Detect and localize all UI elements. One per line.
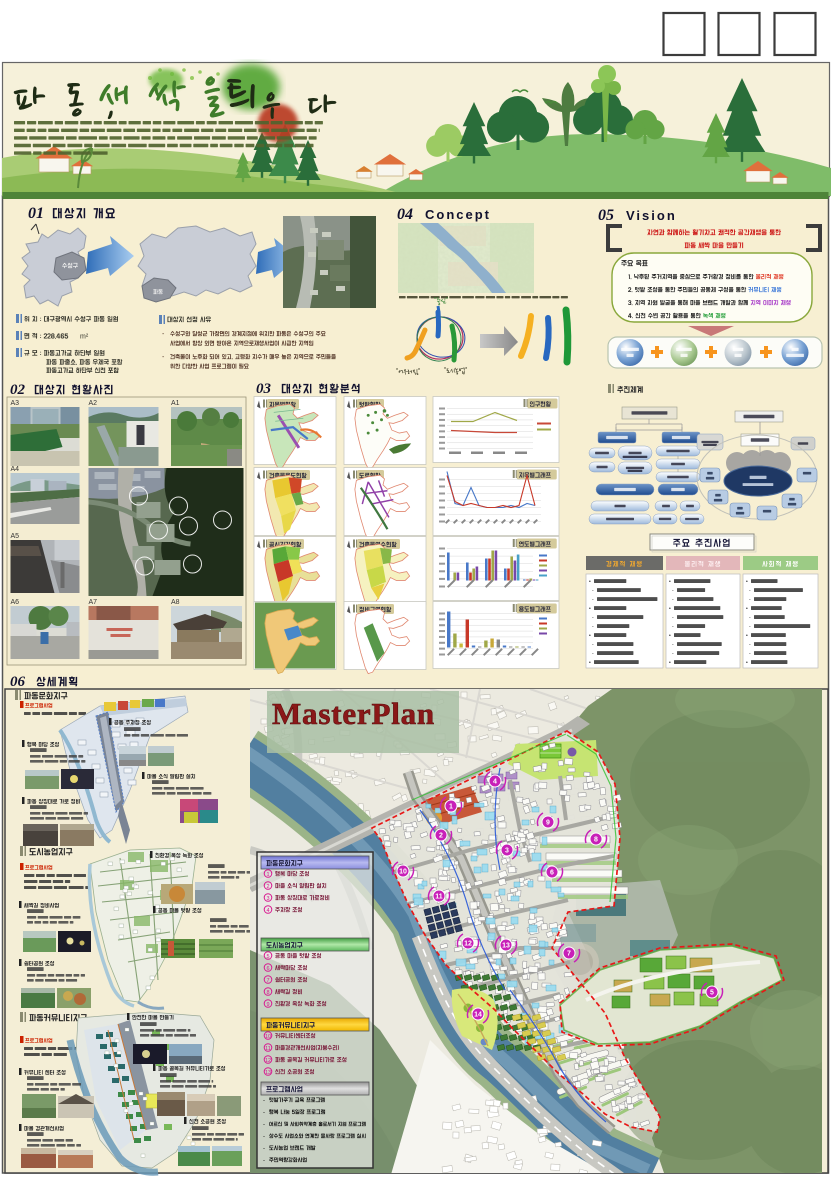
svg-text:4: 4 — [266, 908, 269, 914]
svg-text:13: 13 — [265, 1070, 271, 1076]
svg-text:5: 5 — [710, 989, 714, 996]
svg-text:•: • — [589, 579, 591, 585]
svg-text:A8: A8 — [171, 599, 180, 606]
svg-text:9: 9 — [546, 819, 550, 826]
svg-text:A2: A2 — [89, 400, 98, 407]
svg-text:•: • — [589, 633, 591, 639]
svg-text:•: • — [589, 660, 591, 666]
svg-text:3: 3 — [266, 896, 269, 902]
svg-text:A4: A4 — [11, 466, 20, 473]
svg-text:11: 11 — [435, 893, 443, 900]
svg-text:-: - — [263, 1146, 265, 1152]
svg-text:4: 4 — [493, 778, 497, 785]
svg-text:•: • — [746, 579, 748, 585]
svg-text:8: 8 — [266, 990, 269, 996]
svg-text:•: • — [746, 660, 748, 666]
svg-text:3: 3 — [505, 847, 509, 854]
svg-text:-: - — [263, 1098, 265, 1104]
svg-text:13: 13 — [502, 942, 510, 949]
svg-text:Vision: Vision — [626, 208, 677, 223]
svg-text:A3: A3 — [11, 400, 20, 407]
svg-text:A5: A5 — [11, 533, 20, 540]
svg-text:•: • — [589, 606, 591, 612]
svg-text:6: 6 — [550, 869, 554, 876]
svg-text:11: 11 — [265, 1046, 271, 1052]
svg-text:8: 8 — [594, 836, 598, 843]
svg-text:04: 04 — [397, 206, 413, 223]
svg-text:2: 2 — [439, 832, 443, 839]
svg-text:5: 5 — [266, 954, 269, 960]
svg-text:7: 7 — [266, 978, 269, 984]
svg-text:-: - — [263, 1110, 265, 1116]
svg-text:MasterPlan: MasterPlan — [272, 696, 435, 731]
svg-text:m²: m² — [80, 334, 89, 341]
svg-text:05: 05 — [598, 207, 614, 224]
svg-text:A6: A6 — [11, 599, 20, 606]
svg-text:-: - — [263, 1122, 265, 1128]
svg-text:12: 12 — [265, 1058, 271, 1064]
svg-text:2: 2 — [266, 884, 269, 890]
svg-text:1: 1 — [266, 872, 269, 878]
svg-text:1: 1 — [449, 803, 453, 810]
svg-text:12: 12 — [464, 940, 472, 947]
svg-text:Concept: Concept — [425, 207, 491, 222]
svg-text:•: • — [669, 579, 671, 585]
svg-text:•: • — [669, 606, 671, 612]
svg-text:A1: A1 — [171, 400, 180, 407]
svg-text:•: • — [669, 660, 671, 666]
svg-text:9: 9 — [266, 1002, 269, 1008]
svg-text:10: 10 — [399, 868, 407, 875]
svg-text:14: 14 — [474, 1011, 482, 1018]
svg-text:10: 10 — [265, 1034, 271, 1040]
svg-text:•: • — [746, 633, 748, 639]
svg-text:•: • — [746, 606, 748, 612]
svg-text:A7: A7 — [89, 599, 98, 606]
svg-text:03: 03 — [256, 381, 272, 397]
svg-text:-: - — [263, 1134, 265, 1140]
svg-text:6: 6 — [266, 966, 269, 972]
svg-text:7: 7 — [567, 950, 571, 957]
svg-text:02: 02 — [10, 382, 26, 398]
svg-text:-: - — [263, 1158, 265, 1164]
svg-text:01: 01 — [28, 205, 44, 222]
svg-text:•: • — [669, 633, 671, 639]
svg-text:06: 06 — [10, 674, 26, 690]
